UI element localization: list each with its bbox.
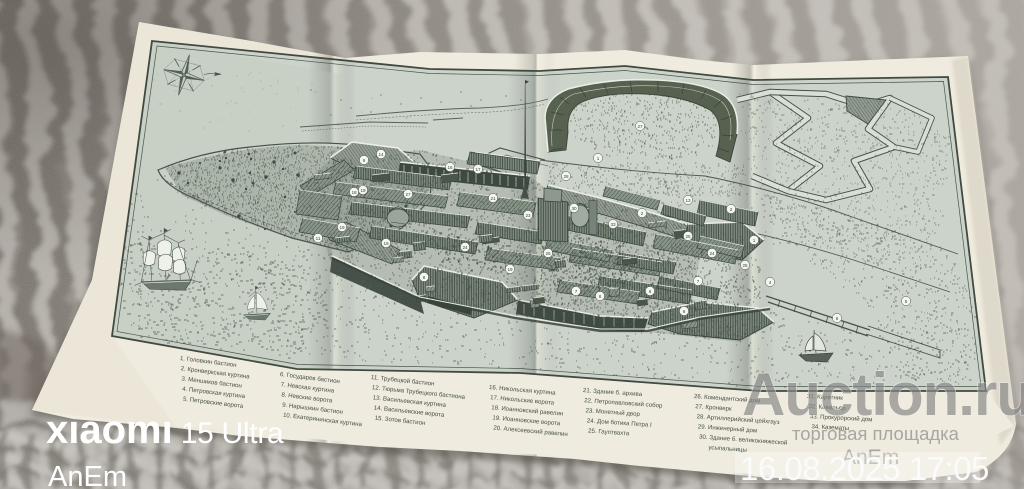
svg-text:21: 21 <box>490 196 496 201</box>
svg-text:5: 5 <box>905 299 908 304</box>
svg-text:8: 8 <box>599 294 602 299</box>
svg-text:7: 7 <box>575 289 578 294</box>
svg-text:6: 6 <box>836 316 839 321</box>
svg-text:27: 27 <box>405 192 411 197</box>
svg-text:25: 25 <box>742 263 748 268</box>
svg-text:11: 11 <box>316 236 321 241</box>
svg-text:19: 19 <box>360 188 366 193</box>
svg-text:13: 13 <box>685 198 691 203</box>
svg-text:18: 18 <box>351 190 357 195</box>
svg-text:1: 1 <box>753 238 756 243</box>
svg-text:17: 17 <box>475 167 481 172</box>
svg-text:6: 6 <box>683 309 686 314</box>
svg-text:16: 16 <box>447 165 453 170</box>
svg-text:28: 28 <box>563 174 569 179</box>
svg-text:1: 1 <box>597 156 600 161</box>
svg-text:24: 24 <box>709 251 715 256</box>
svg-text:7: 7 <box>697 279 700 284</box>
svg-text:30: 30 <box>571 206 577 211</box>
svg-text:33: 33 <box>610 222 616 227</box>
svg-text:19: 19 <box>339 225 345 230</box>
svg-text:19: 19 <box>507 267 513 272</box>
svg-text:2: 2 <box>641 211 644 216</box>
svg-text:27: 27 <box>637 124 643 129</box>
svg-text:24: 24 <box>462 245 468 250</box>
svg-text:16.08.2025 17:05: 16.08.2025 17:05 <box>740 450 989 487</box>
svg-text:4: 4 <box>769 280 772 285</box>
svg-text:6: 6 <box>649 289 652 294</box>
svg-text:AnEm: AnEm <box>48 461 127 489</box>
svg-text:6: 6 <box>363 158 366 163</box>
svg-text:26: 26 <box>545 251 551 256</box>
svg-text:2: 2 <box>730 207 733 212</box>
svg-text:19: 19 <box>383 241 389 246</box>
svg-text:25: 25 <box>685 234 691 239</box>
svg-text:8: 8 <box>423 275 426 280</box>
svg-text:23: 23 <box>525 213 531 218</box>
svg-text:торговая площадка: торговая площадка <box>792 423 960 444</box>
svg-text:Auction.ru: Auction.ru <box>742 361 1024 428</box>
svg-text:14: 14 <box>378 152 384 157</box>
